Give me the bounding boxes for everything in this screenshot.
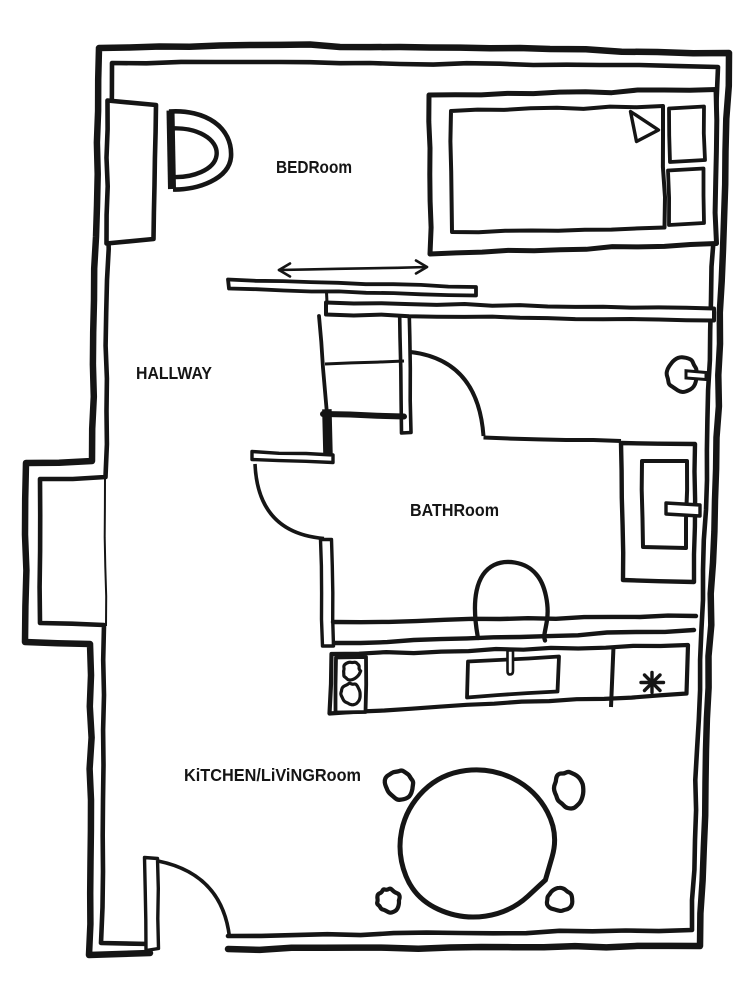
svg-text:HALLWAY: HALLWAY (136, 363, 212, 383)
svg-text:BATHRoom: BATHRoom (410, 500, 499, 520)
svg-text:KiTCHEN/LiViNGRoom: KiTCHEN/LiViNGRoom (184, 765, 361, 785)
svg-text:BEDRoom: BEDRoom (276, 157, 352, 177)
